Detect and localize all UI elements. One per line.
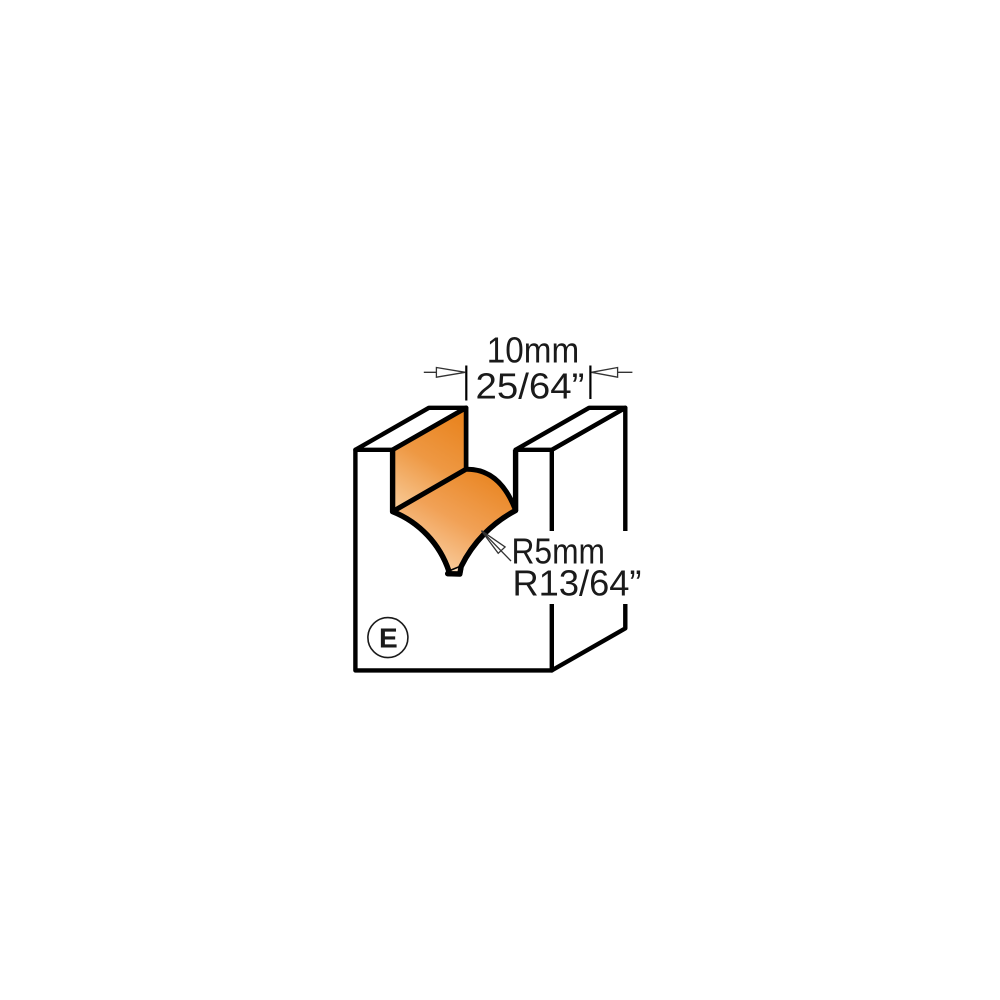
svg-text:25/64”: 25/64” <box>476 367 585 407</box>
svg-text:10mm: 10mm <box>487 331 579 371</box>
svg-text:R13/64”: R13/64” <box>513 564 642 604</box>
svg-text:E: E <box>379 623 398 654</box>
